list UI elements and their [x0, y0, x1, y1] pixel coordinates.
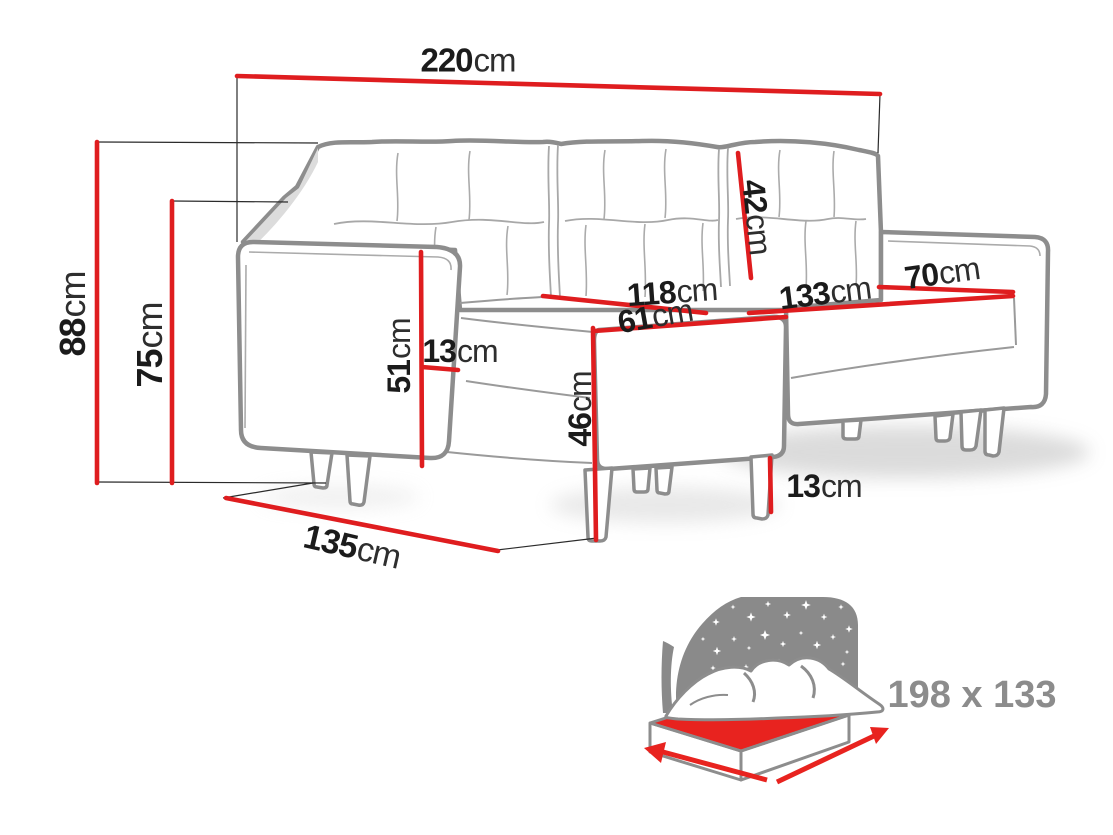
sofa-dimension-diagram: 220cm 88cm 75cm 42cm 118cm 61cm 133cm 70… — [0, 0, 1113, 835]
dim-armrest-width: 13cm — [422, 335, 497, 367]
bed-moon-stars-icon — [644, 597, 889, 782]
sleeping-area-size-label: 198 x 133 — [887, 676, 1056, 714]
dim-armrest-height: 51cm — [383, 318, 415, 393]
sofa-left-armrest — [238, 242, 460, 505]
dim-leg-height: 13cm — [786, 470, 861, 502]
dim-frame-height: 75cm — [132, 302, 168, 387]
dim-chaise-front-height: 46cm — [564, 371, 596, 446]
dim-total-width: 220cm — [420, 44, 515, 77]
dim-total-height: 88cm — [55, 271, 91, 356]
dim-backrest-cushion-height: 42cm — [737, 178, 777, 256]
